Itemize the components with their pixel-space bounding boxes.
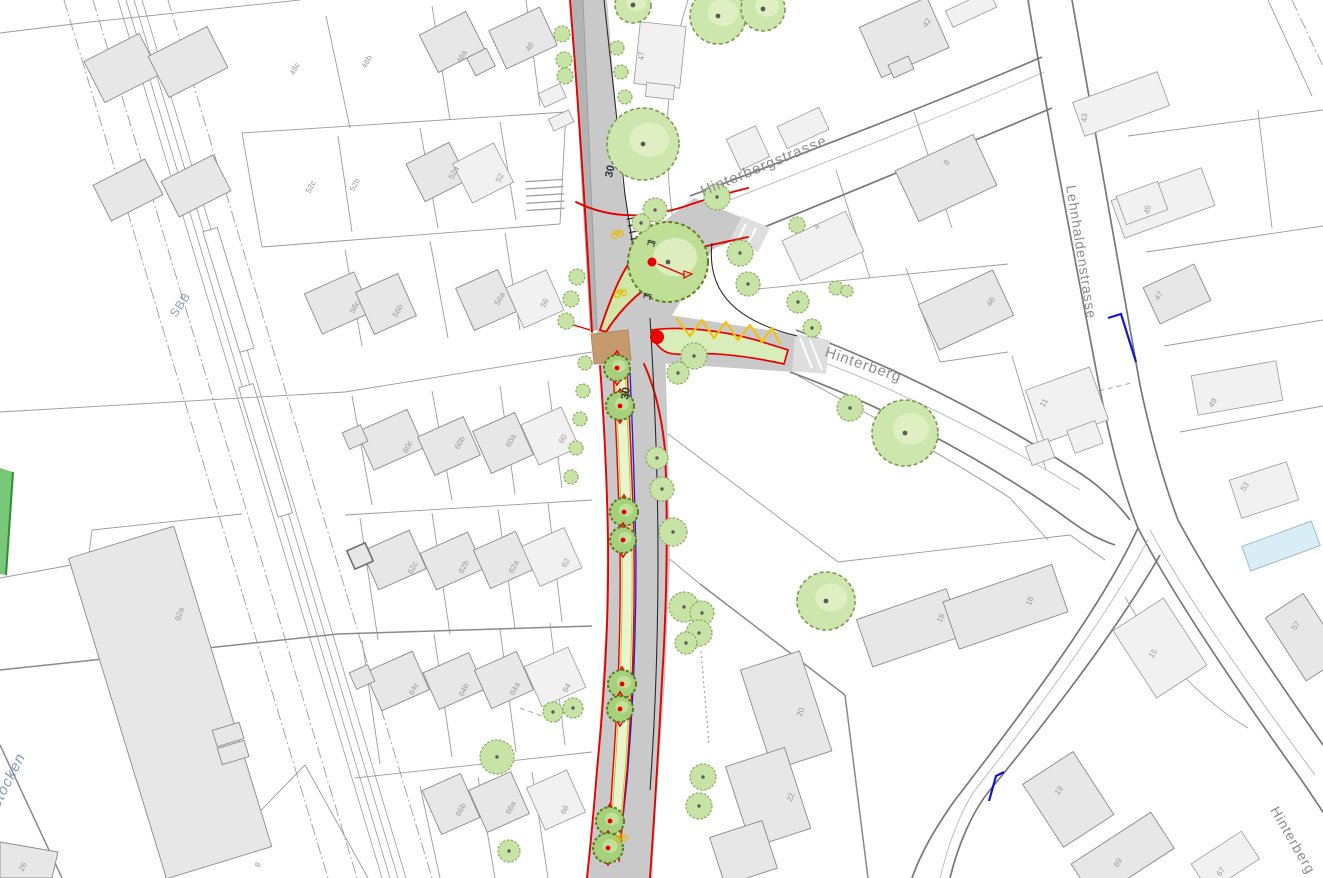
tree bbox=[576, 384, 590, 398]
building bbox=[1229, 462, 1298, 519]
street-label: Hinterberg bbox=[823, 344, 904, 386]
tree bbox=[686, 793, 712, 819]
tree bbox=[841, 285, 853, 297]
tree bbox=[569, 269, 585, 285]
tree bbox=[675, 632, 697, 654]
tree bbox=[498, 840, 520, 862]
building bbox=[918, 270, 1013, 350]
tree bbox=[556, 52, 572, 68]
building bbox=[422, 774, 480, 835]
building bbox=[69, 526, 272, 878]
tree bbox=[563, 291, 579, 307]
tree bbox=[803, 319, 821, 337]
swimming-pool bbox=[1242, 521, 1320, 571]
tree bbox=[667, 362, 689, 384]
building bbox=[522, 528, 582, 587]
tree bbox=[646, 447, 668, 469]
building bbox=[161, 155, 231, 217]
street-label: Lehnhaldenstrasse bbox=[1063, 184, 1100, 320]
building bbox=[895, 134, 997, 221]
building bbox=[474, 651, 533, 708]
tree bbox=[690, 764, 716, 790]
rail-platform bbox=[203, 227, 254, 352]
tree bbox=[615, 0, 651, 23]
tree bbox=[727, 240, 753, 266]
tree bbox=[607, 108, 679, 180]
building bbox=[473, 413, 534, 474]
tree bbox=[690, 0, 746, 44]
tree bbox=[578, 356, 592, 370]
tree bbox=[618, 90, 632, 104]
building bbox=[84, 33, 160, 102]
map-canvas: HinterbergstrasseHinterbergLehnhaldenstr… bbox=[0, 0, 1323, 878]
site-plan-map: HinterbergstrasseHinterbergLehnhaldenstr… bbox=[0, 0, 1323, 878]
building bbox=[420, 532, 484, 590]
red-marker-dot bbox=[650, 330, 664, 344]
tree bbox=[797, 572, 855, 630]
building bbox=[93, 159, 163, 221]
building bbox=[943, 564, 1068, 649]
building-label: 52c bbox=[304, 179, 318, 195]
tree bbox=[573, 412, 587, 426]
building-label: 48b bbox=[360, 53, 374, 69]
tree bbox=[563, 698, 583, 718]
building bbox=[489, 7, 558, 69]
tree bbox=[787, 291, 809, 313]
building-label: 8 bbox=[253, 860, 263, 869]
tree bbox=[837, 395, 863, 421]
building bbox=[645, 83, 674, 100]
building bbox=[418, 417, 481, 476]
rail-platform bbox=[239, 384, 293, 517]
building bbox=[506, 270, 564, 328]
tree bbox=[650, 477, 674, 501]
building-label: 52b bbox=[348, 176, 362, 192]
building bbox=[0, 842, 58, 878]
tree bbox=[610, 41, 624, 55]
building bbox=[524, 647, 586, 707]
tree bbox=[741, 0, 785, 31]
tree bbox=[659, 518, 687, 546]
building bbox=[538, 84, 566, 108]
building bbox=[1113, 598, 1207, 698]
building bbox=[423, 653, 485, 710]
building bbox=[356, 274, 417, 335]
street-label: Hinterbergstrasse bbox=[698, 132, 830, 200]
tree bbox=[543, 702, 563, 722]
building-label: 48c bbox=[288, 61, 302, 77]
street-label: SBB bbox=[167, 289, 194, 319]
road-marking-label: 30 bbox=[619, 386, 633, 400]
tree bbox=[480, 740, 514, 774]
tree bbox=[872, 400, 938, 466]
building-label: 47 bbox=[637, 51, 646, 61]
building-label: 43 bbox=[1080, 112, 1090, 122]
tree bbox=[569, 441, 583, 455]
tree bbox=[557, 68, 573, 84]
tree bbox=[632, 214, 650, 232]
building bbox=[456, 270, 517, 331]
street-label: erstocken bbox=[0, 750, 29, 824]
tree bbox=[564, 470, 578, 484]
tree bbox=[789, 217, 805, 233]
road-marking-label: 30 bbox=[603, 164, 617, 178]
tree bbox=[554, 26, 570, 42]
building bbox=[945, 0, 996, 27]
building bbox=[527, 770, 586, 830]
red-marker-dot bbox=[648, 258, 657, 267]
tree bbox=[558, 313, 574, 329]
tree bbox=[736, 272, 760, 296]
building bbox=[1023, 752, 1114, 848]
tree bbox=[628, 222, 708, 302]
tree bbox=[614, 65, 628, 79]
building bbox=[1143, 264, 1211, 324]
building bbox=[1265, 593, 1323, 680]
building bbox=[473, 531, 532, 588]
building bbox=[453, 143, 514, 203]
building bbox=[469, 772, 530, 833]
street-label: Hinterberg bbox=[1267, 804, 1319, 877]
building bbox=[1191, 361, 1283, 415]
